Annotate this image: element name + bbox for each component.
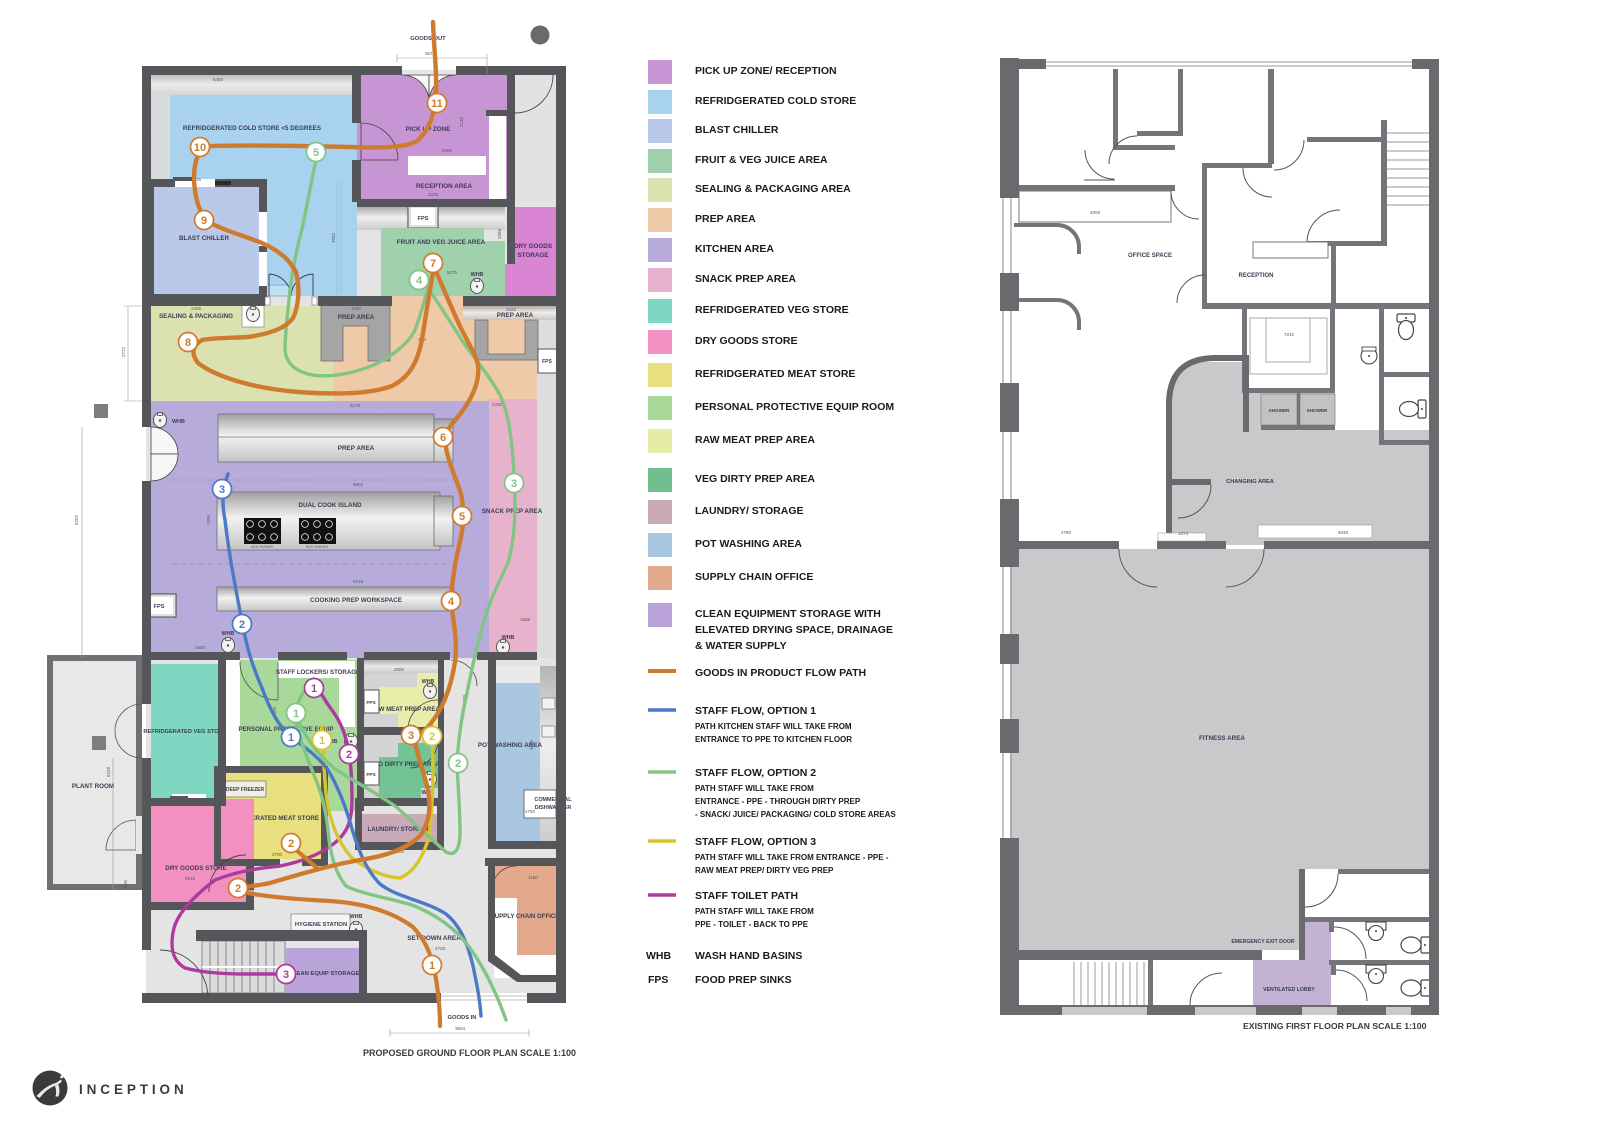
svg-text:5252: 5252 [74,514,79,525]
svg-text:2136: 2136 [459,116,464,127]
svg-text:VEG DIRTY PREP AREA: VEG DIRTY PREP AREA [370,761,440,768]
svg-text:3604: 3604 [455,1026,466,1031]
svg-text:SEALING & PACKAGING: SEALING & PACKAGING [159,313,233,320]
svg-text:11: 11 [431,98,443,110]
svg-text:2000: 2000 [394,654,405,659]
svg-text:PICK UP ZONE/ RECEPTION: PICK UP ZONE/ RECEPTION [695,65,837,77]
svg-text:CLEAN EQUIPMENT STORAGE WITH: CLEAN EQUIPMENT STORAGE WITH [695,608,881,620]
svg-text:2438: 2438 [191,306,202,311]
svg-text:9: 9 [201,215,207,227]
svg-text:PREP AREA: PREP AREA [338,445,375,452]
svg-text:6802: 6802 [353,482,364,487]
svg-text:PATH KITCHEN STAFF WILL TAKE F: PATH KITCHEN STAFF WILL TAKE FROM [695,722,852,731]
svg-text:5045: 5045 [1338,530,1349,535]
svg-text:RAW MEAT PREP AREA: RAW MEAT PREP AREA [695,434,815,446]
svg-text:FPS: FPS [648,974,668,986]
svg-text:WASH HAND BASINS: WASH HAND BASINS [695,950,802,962]
svg-text:2005: 2005 [146,234,151,245]
svg-text:PREP AREA: PREP AREA [695,213,756,225]
svg-text:CHANGING AREA: CHANGING AREA [1226,479,1274,485]
svg-text:WHB: WHB [172,419,185,425]
svg-text:2: 2 [455,758,461,770]
svg-text:SHOWER: SHOWER [1269,408,1290,413]
svg-text:3376: 3376 [428,192,439,197]
svg-text:FRUIT & VEG JUICE AREA: FRUIT & VEG JUICE AREA [695,154,828,166]
svg-text:2: 2 [239,619,245,631]
svg-text:6: 6 [440,432,446,444]
svg-text:REFRIDGERATED MEAT STORE: REFRIDGERATED MEAT STORE [695,368,855,380]
svg-text:SUPPLY CHAIN OFFICE: SUPPLY CHAIN OFFICE [695,571,813,583]
svg-text:FPS: FPS [366,700,376,706]
svg-text:FPS: FPS [154,604,165,610]
svg-text:RAW MEAT PREP AREA: RAW MEAT PREP AREA [370,706,440,713]
svg-text:& WATER SUPPLY: & WATER SUPPLY [695,640,787,652]
svg-text:HYGIENE STATION: HYGIENE STATION [295,922,347,928]
svg-text:2202: 2202 [492,402,503,407]
svg-text:10: 10 [194,142,206,154]
svg-text:COOKING PREP WORKSPACE: COOKING PREP WORKSPACE [310,597,402,604]
svg-text:7: 7 [430,258,436,270]
svg-text:WHB: WHB [222,631,235,637]
svg-text:ELEVATED DRYING SPACE, DRAINAG: ELEVATED DRYING SPACE, DRAINAGE [695,624,893,636]
svg-text:INCEPTION: INCEPTION [79,1082,188,1097]
svg-text:DRY GOODS: DRY GOODS [514,243,552,250]
svg-text:5400: 5400 [213,77,224,82]
svg-text:FOOD PREP SINKS: FOOD PREP SINKS [695,974,792,986]
svg-text:WHB: WHB [646,950,671,962]
svg-text:ENTRANCE - PPE - THROUGH DIRTY: ENTRANCE - PPE - THROUGH DIRTY PREP [695,797,861,806]
svg-text:WHB: WHB [422,679,435,685]
svg-text:WOK BURNER: WOK BURNER [251,545,274,549]
svg-text:VEG DIRTY PREP AREA: VEG DIRTY PREP AREA [695,473,815,485]
svg-text:SEALING & PACKAGING AREA: SEALING & PACKAGING AREA [695,183,851,195]
svg-text:VENTILATED LOBBY: VENTILATED LOBBY [1263,987,1315,993]
svg-text:PATH STAFF WILL TAKE FROM ENTR: PATH STAFF WILL TAKE FROM ENTRANCE - PPE… [695,853,889,862]
svg-text:REFRIDGERATED COLD STORE: REFRIDGERATED COLD STORE [695,95,856,107]
svg-text:PREP AREA: PREP AREA [497,312,534,319]
svg-text:FPS: FPS [366,772,376,778]
svg-text:5: 5 [459,511,465,523]
svg-text:SHOWER: SHOWER [1307,408,1328,413]
svg-text:OFFICE SPACE: OFFICE SPACE [1128,253,1172,259]
svg-text:DUAL COOK ISLAND: DUAL COOK ISLAND [298,502,362,509]
svg-text:1: 1 [319,735,325,747]
svg-text:1: 1 [311,683,317,695]
svg-text:6318: 6318 [353,579,364,584]
svg-text:4: 4 [416,275,423,287]
svg-text:- SNACK/ JUICE/ PACKAGING/ COL: - SNACK/ JUICE/ PACKAGING/ COLD STORE AR… [695,810,896,819]
svg-text:WHB: WHB [471,272,484,278]
svg-text:POT WASHING AREA: POT WASHING AREA [695,538,802,550]
svg-text:3: 3 [219,484,225,496]
svg-text:SNACK PREP AREA: SNACK PREP AREA [482,508,543,515]
svg-text:EXISTING FIRST FLOOR PLAN SCA: EXISTING FIRST FLOOR PLAN SCALE 1:100 [1243,1021,1427,1031]
svg-text:RAW MEAT PREP/ DIRTY VEG PREP: RAW MEAT PREP/ DIRTY VEG PREP [695,866,834,875]
svg-text:2522: 2522 [506,307,517,312]
svg-text:2: 2 [429,731,435,743]
svg-text:DEEP FREEZER: DEEP FREEZER [226,787,265,793]
svg-text:5275: 5275 [447,270,458,275]
svg-text:BLAST CHILLER: BLAST CHILLER [179,235,229,242]
svg-text:2700: 2700 [272,852,283,857]
svg-text:5810: 5810 [185,876,196,881]
svg-text:STORAGE: STORAGE [517,252,548,259]
svg-text:1750: 1750 [525,809,536,814]
svg-text:STAFF FLOW, OPTION 1: STAFF FLOW, OPTION 1 [695,705,816,717]
svg-text:3: 3 [283,969,289,981]
svg-text:2890: 2890 [143,124,148,135]
svg-text:1274: 1274 [1178,531,1189,536]
svg-text:PREP AREA: PREP AREA [338,314,375,321]
svg-text:6178: 6178 [350,403,361,408]
svg-text:GOODS OUT: GOODS OUT [410,36,446,42]
svg-text:PERSONAL PROTECTIVE EQUIP ROOM: PERSONAL PROTECTIVE EQUIP ROOM [695,401,894,413]
svg-text:WOK BURNER: WOK BURNER [306,545,329,549]
svg-text:FPS: FPS [418,216,429,222]
svg-text:REFRIDGERATED VEG STORE: REFRIDGERATED VEG STORE [143,729,226,735]
svg-text:WHB: WHB [502,635,515,641]
svg-text:RECEPTION AREA: RECEPTION AREA [416,183,473,190]
svg-text:2080: 2080 [442,148,453,153]
svg-text:ENTRANCE TO PPE TO KITCHEN FLO: ENTRANCE TO PPE TO KITCHEN FLOOR [695,735,852,744]
svg-text:3: 3 [408,730,414,742]
svg-text:8: 8 [185,337,191,349]
svg-text:1656: 1656 [520,617,531,622]
svg-text:SUPPLY CHAIN OFFICE: SUPPLY CHAIN OFFICE [491,913,560,920]
svg-text:1150: 1150 [528,875,538,880]
svg-text:1: 1 [429,960,435,972]
svg-text:PATH STAFF WILL TAKE FROM: PATH STAFF WILL TAKE FROM [695,907,814,916]
svg-text:2000: 2000 [394,667,405,672]
svg-text:820: 820 [123,880,128,888]
svg-text:1: 1 [288,732,294,744]
svg-text:2: 2 [235,883,241,895]
svg-text:PROPOSED GROUND FLOOR PLAN SC: PROPOSED GROUND FLOOR PLAN SCALE 1:100 [363,1048,576,1058]
svg-text:2780: 2780 [1061,530,1072,535]
svg-text:1500: 1500 [206,514,211,525]
svg-text:2: 2 [346,749,352,761]
svg-text:SET DOWN AREA: SET DOWN AREA [407,935,461,942]
svg-text:1: 1 [293,708,299,720]
svg-text:5: 5 [313,147,319,159]
svg-text:STAFF TOILET PATH: STAFF TOILET PATH [695,890,798,902]
svg-text:WHB: WHB [350,914,363,920]
svg-text:COMMERICAL: COMMERICAL [534,797,572,803]
svg-text:3: 3 [511,478,517,490]
svg-text:FRUIT AND VEG JUICE AREA: FRUIT AND VEG JUICE AREA [397,239,486,246]
svg-text:PPE - TOILET - BACK TO PPE: PPE - TOILET - BACK TO PPE [695,920,809,929]
svg-text:LAUNDRY/ STORAGE: LAUNDRY/ STORAGE [695,505,804,517]
svg-text:2: 2 [288,838,294,850]
svg-text:4728: 4728 [435,946,446,951]
svg-text:6228: 6228 [106,766,111,777]
svg-text:7242: 7242 [1284,332,1295,337]
svg-text:2358: 2358 [497,228,502,239]
svg-text:PATH STAFF WILL TAKE FROM: PATH STAFF WILL TAKE FROM [695,784,814,793]
svg-text:STAFF LOCKERS/ STORAGE: STAFF LOCKERS/ STORAGE [276,669,360,676]
svg-text:4008: 4008 [1090,210,1101,215]
svg-text:STAFF FLOW, OPTION 3: STAFF FLOW, OPTION 3 [695,836,816,848]
svg-text:STAFF FLOW, OPTION 2: STAFF FLOW, OPTION 2 [695,767,816,779]
svg-text:GOODS IN: GOODS IN [448,1015,477,1021]
svg-text:2600: 2600 [195,645,206,650]
svg-text:FPS: FPS [542,359,552,365]
svg-text:3640: 3640 [529,739,534,750]
svg-text:2772: 2772 [121,346,126,357]
svg-text:REFRIDGERATED COLD STORE <5 DE: REFRIDGERATED COLD STORE <5 DEGREES [183,125,321,132]
svg-text:CLEAN EQUIP STORAGE: CLEAN EQUIP STORAGE [289,971,360,977]
svg-text:2600: 2600 [262,768,273,773]
svg-text:REFRIDGERATED VEG STORE: REFRIDGERATED VEG STORE [695,304,849,316]
svg-text:EMERGENCY EXIT DOOR: EMERGENCY EXIT DOOR [1231,939,1295,945]
svg-text:KITCHEN AREA: KITCHEN AREA [695,243,774,255]
svg-text:SNACK PREP AREA: SNACK PREP AREA [695,273,796,285]
svg-text:4: 4 [448,596,455,608]
svg-text:DRY GOODS STORE: DRY GOODS STORE [695,335,798,347]
svg-text:GOODS IN PRODUCT FLOW PATH: GOODS IN PRODUCT FLOW PATH [695,667,866,679]
svg-text:1790: 1790 [351,306,362,311]
svg-text:3552: 3552 [331,232,336,243]
svg-text:PLANT ROOM: PLANT ROOM [72,783,114,790]
svg-text:RECEPTION: RECEPTION [1238,273,1273,279]
svg-text:BLAST CHILLER: BLAST CHILLER [695,124,779,136]
svg-text:FITNESS AREA: FITNESS AREA [1199,735,1245,742]
